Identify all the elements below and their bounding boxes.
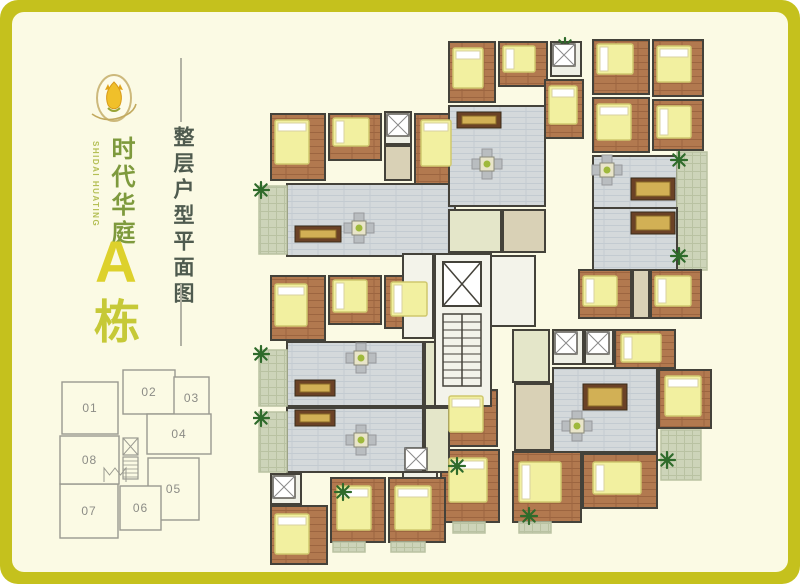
bed xyxy=(395,486,431,530)
shower-icon xyxy=(553,44,575,66)
building-suffix: 栋 xyxy=(94,296,138,349)
bed xyxy=(333,280,367,312)
plant-icon xyxy=(335,484,351,500)
bed xyxy=(453,48,483,88)
room-balcony xyxy=(391,542,425,552)
room-hall xyxy=(491,256,535,326)
plant-icon xyxy=(671,152,687,168)
room-kitchen xyxy=(449,210,501,252)
key-unit-label: 02 xyxy=(141,385,156,399)
room-balcony xyxy=(333,542,365,552)
plant-icon xyxy=(253,410,269,426)
title-rule-bottom xyxy=(180,284,182,346)
stairs xyxy=(443,314,481,386)
logo-flower-icon xyxy=(84,64,144,132)
bed xyxy=(333,118,369,146)
shower-icon xyxy=(273,476,295,498)
bed xyxy=(665,376,701,416)
bed xyxy=(449,396,483,432)
room-kitchen xyxy=(425,408,449,472)
key-unit-label: 06 xyxy=(133,501,148,515)
key-unit-04: 04 xyxy=(147,414,211,454)
room-balcony xyxy=(519,522,551,533)
tv-stand xyxy=(295,410,335,426)
key-unit-03: 03 xyxy=(174,377,209,419)
key-unit-08: 08 xyxy=(60,436,119,484)
tv-stand xyxy=(631,212,675,234)
bed xyxy=(621,334,661,362)
key-unit-label: 08 xyxy=(82,453,97,467)
bed xyxy=(421,120,451,166)
plant-icon xyxy=(521,508,537,524)
room-corridor xyxy=(633,270,649,318)
key-unit-label: 01 xyxy=(82,401,97,415)
bed xyxy=(549,86,577,124)
room-corridor xyxy=(515,384,551,450)
bed xyxy=(657,106,691,138)
key-stairs xyxy=(123,457,138,479)
plant-icon xyxy=(253,346,269,362)
key-unit-01: 01 xyxy=(62,382,118,434)
card-frame: SHIDAI HUATING 时代华庭 A 栋 整层户型平面图 01020304… xyxy=(0,0,800,584)
panel: SHIDAI HUATING 时代华庭 A 栋 整层户型平面图 01020304… xyxy=(12,12,788,572)
bed xyxy=(503,46,535,72)
key-unit-label: 07 xyxy=(81,504,96,518)
bed xyxy=(391,282,427,316)
key-unit-label: 05 xyxy=(166,482,181,496)
main-floor-plan xyxy=(253,28,773,568)
key-unit-07: 07 xyxy=(60,484,118,538)
room-balcony xyxy=(453,522,485,533)
plant-icon xyxy=(671,248,687,264)
brand-name-en: SHIDAI HUATING xyxy=(91,141,100,227)
room-corridor xyxy=(503,210,545,252)
key-unit-06: 06 xyxy=(120,486,161,530)
key-plan: 0102030405060708 xyxy=(50,350,225,550)
bed xyxy=(597,44,633,74)
bed xyxy=(275,284,307,326)
tv-stand xyxy=(631,178,675,200)
shower-icon xyxy=(405,448,427,470)
room-balcony xyxy=(259,350,287,406)
bed xyxy=(275,514,309,554)
key-unit-02: 02 xyxy=(123,370,175,414)
tv-stand xyxy=(295,226,341,242)
bed xyxy=(519,462,561,502)
room-corridor xyxy=(385,146,411,180)
bed xyxy=(593,462,641,494)
tv-stand xyxy=(295,380,335,396)
page-title: 整层户型平面图 xyxy=(168,126,198,308)
bed xyxy=(583,276,617,306)
shower-icon xyxy=(555,332,577,354)
key-elevator-x-icon xyxy=(123,438,138,455)
tv-stand xyxy=(457,112,501,128)
tv-stand xyxy=(583,384,627,410)
shower-icon xyxy=(587,332,609,354)
bed xyxy=(655,276,691,306)
title-rule-top xyxy=(180,58,182,122)
shower-icon xyxy=(387,114,409,136)
plant-icon xyxy=(253,182,269,198)
bed xyxy=(657,46,691,82)
plant-icon xyxy=(449,458,465,474)
key-unit-label: 03 xyxy=(184,391,199,405)
room-balcony xyxy=(259,186,287,254)
bed xyxy=(275,120,309,164)
bed xyxy=(597,104,631,140)
room-kitchen xyxy=(513,330,549,382)
room-living xyxy=(287,184,455,256)
building-letter: A xyxy=(94,234,138,292)
plant-icon xyxy=(659,452,675,468)
key-unit-label: 04 xyxy=(171,427,186,441)
